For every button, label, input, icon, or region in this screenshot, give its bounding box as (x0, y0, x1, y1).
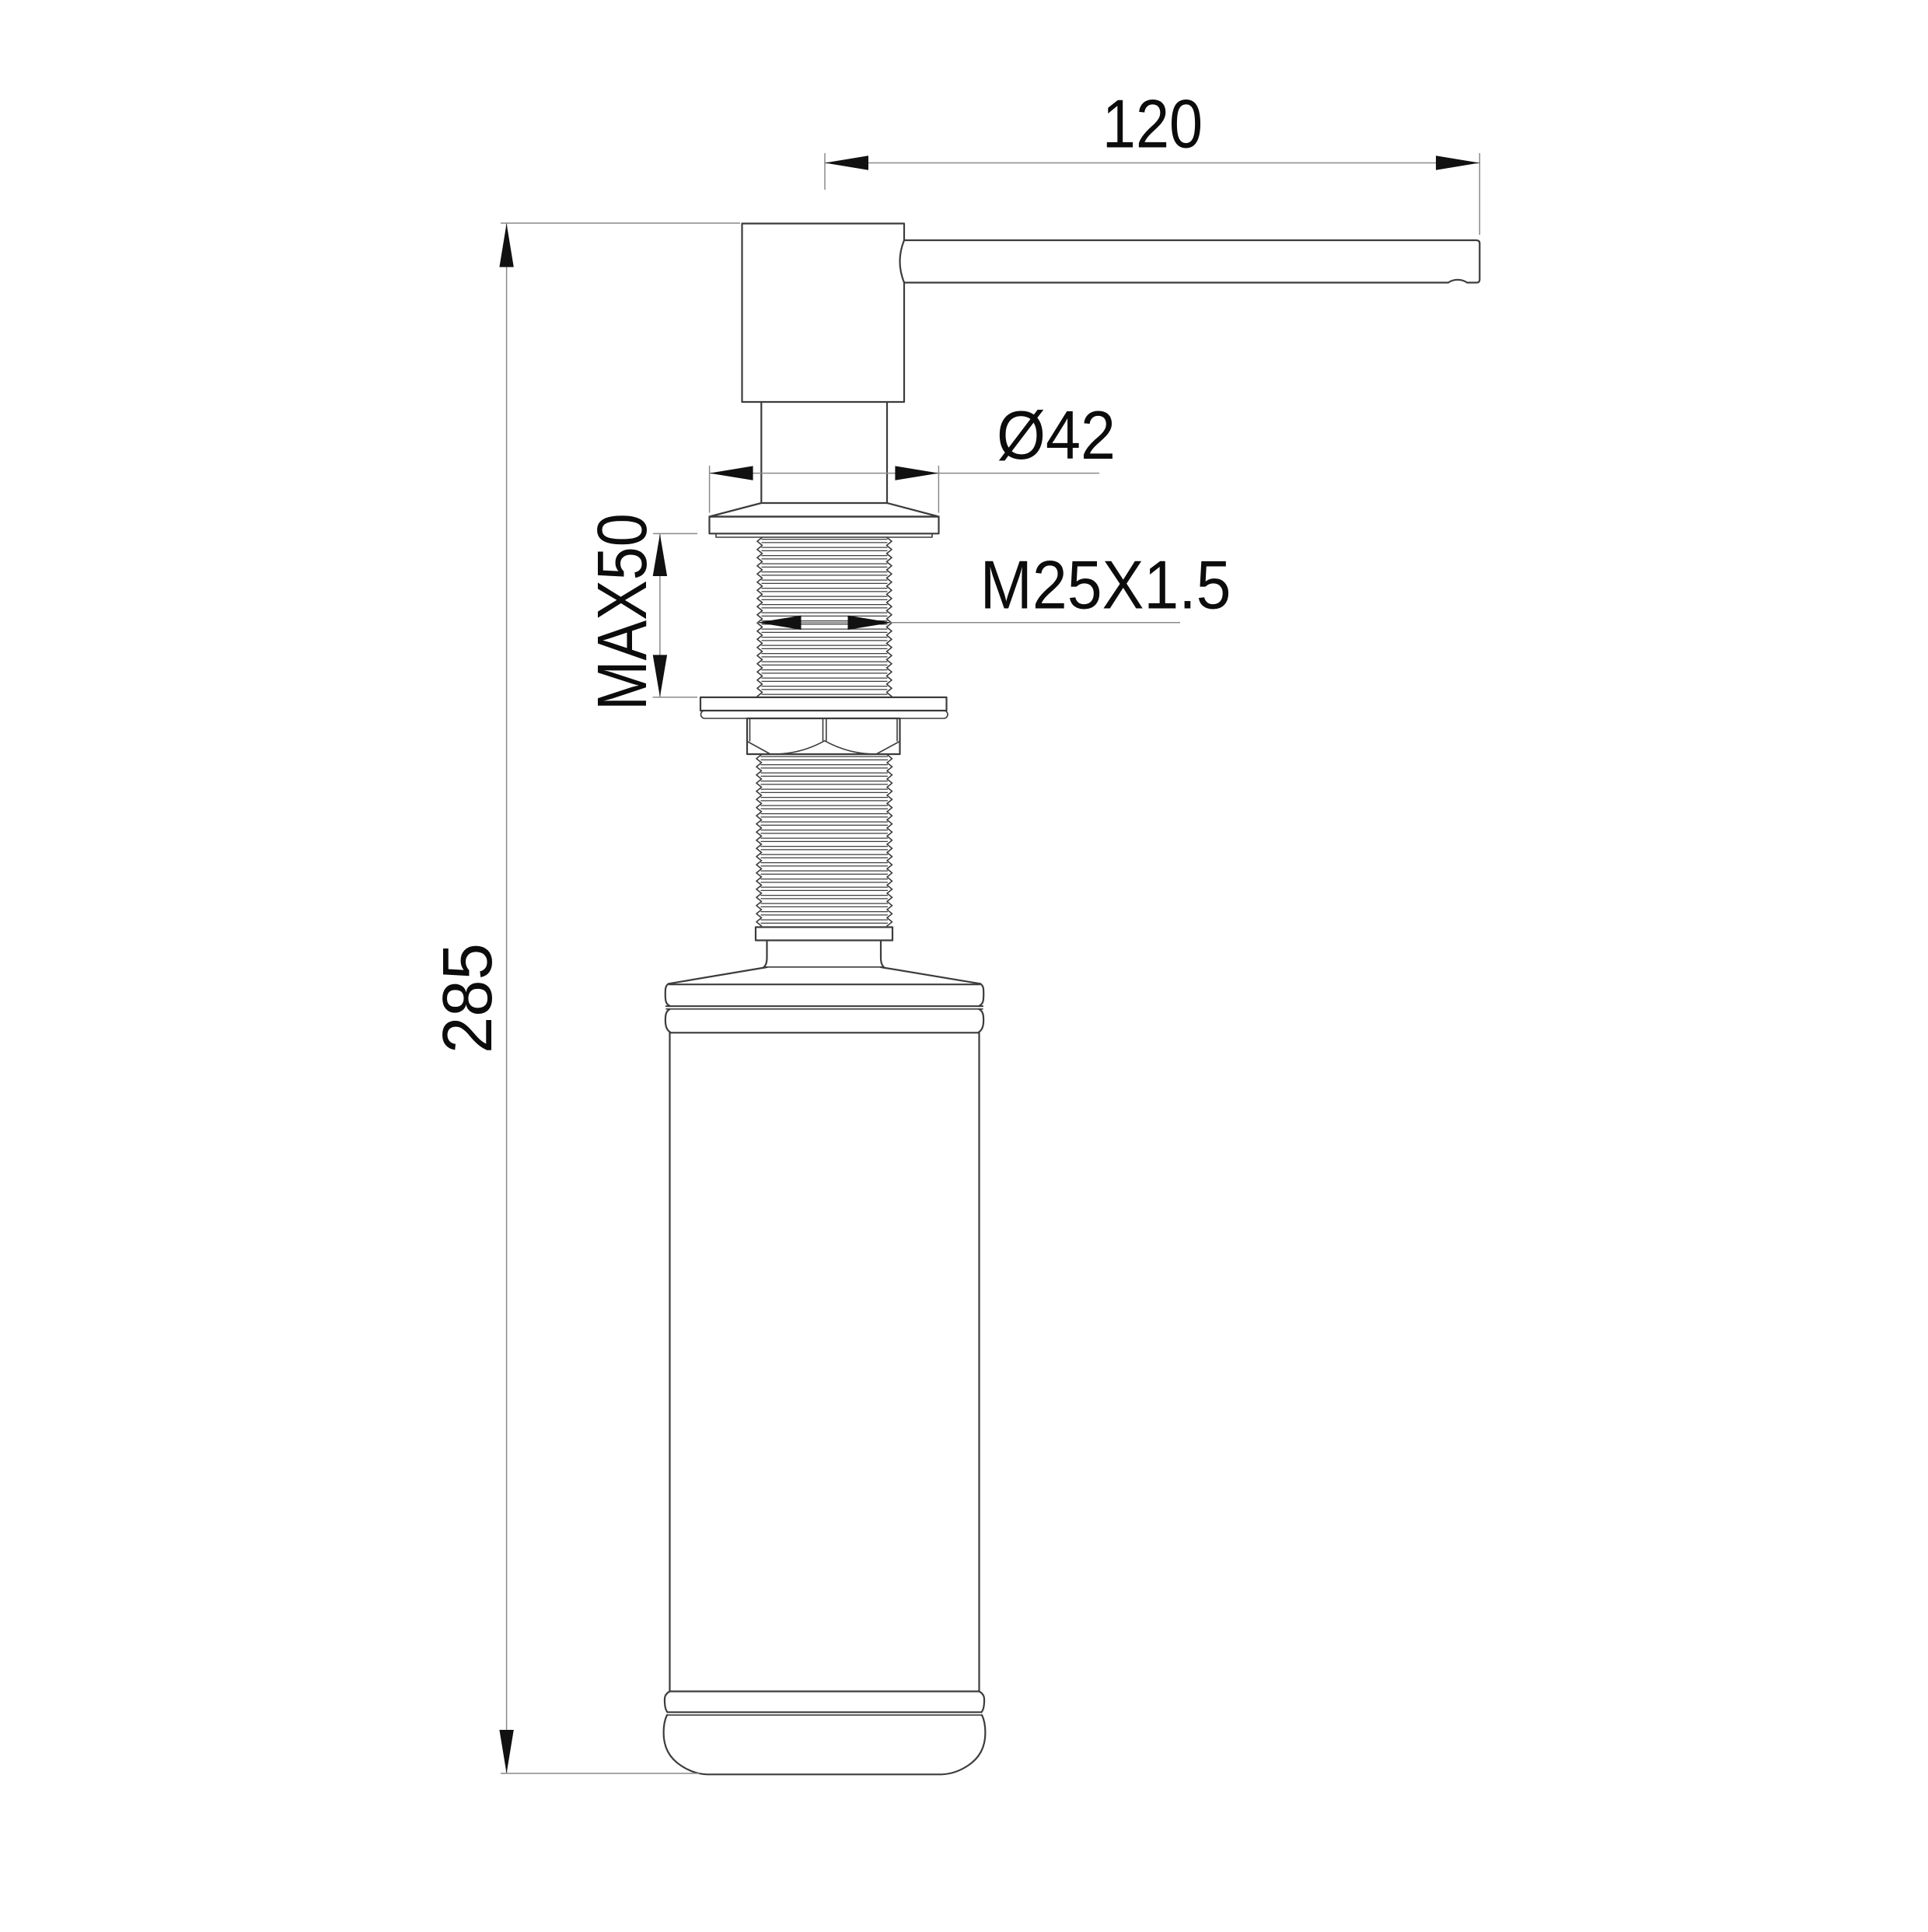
svg-text:MAX50: MAX50 (583, 513, 662, 711)
svg-text:Ø42: Ø42 (997, 397, 1116, 473)
svg-text:M25X1.5: M25X1.5 (980, 547, 1231, 623)
svg-text:285: 285 (428, 943, 507, 1053)
svg-text:120: 120 (1102, 86, 1203, 162)
